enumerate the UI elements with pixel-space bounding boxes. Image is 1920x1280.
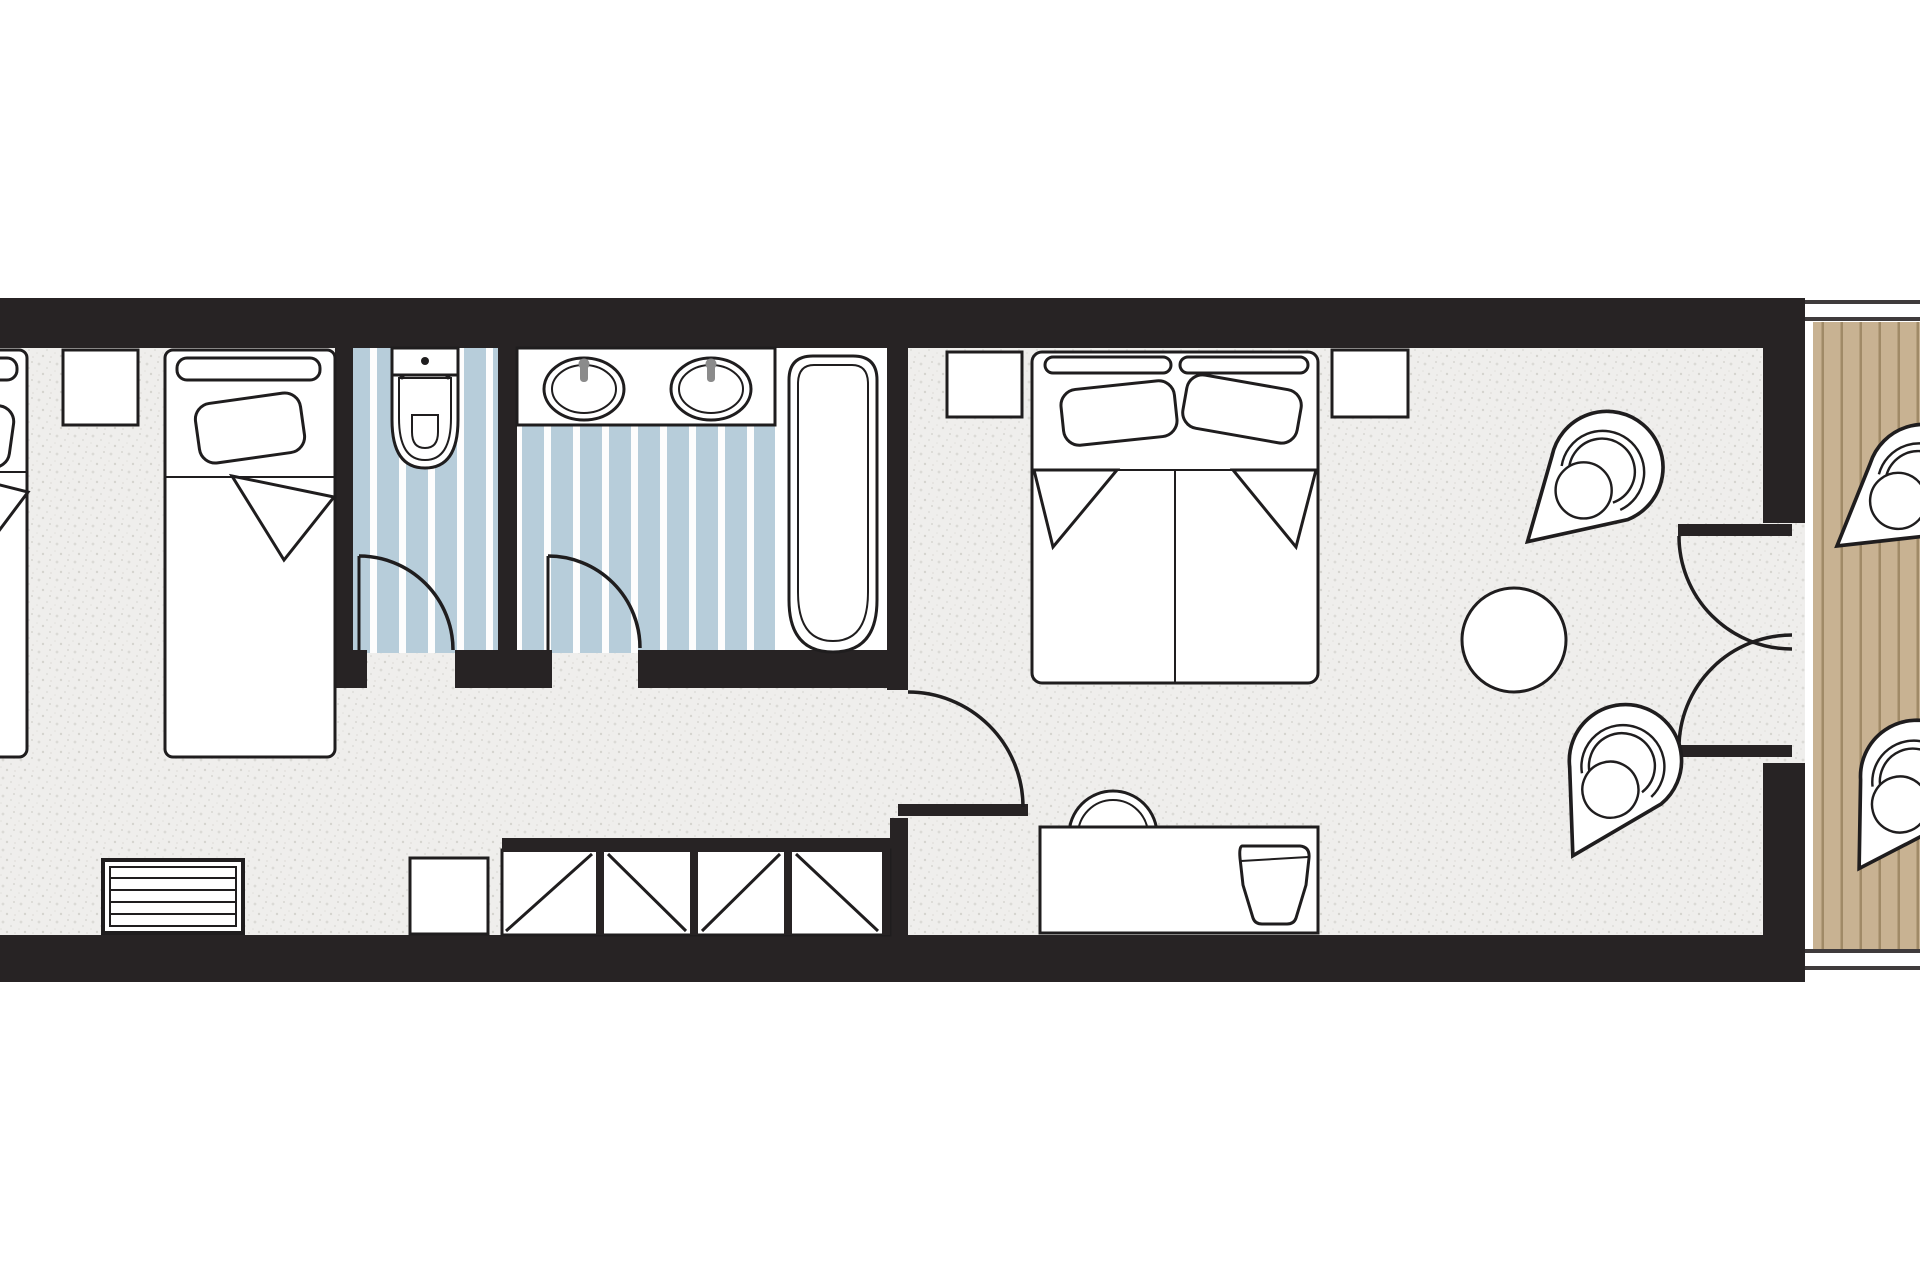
single-bed <box>165 350 335 757</box>
single-bed-clipped <box>0 350 28 757</box>
french-door-leaf-lower <box>1678 745 1792 757</box>
radiator <box>103 860 243 933</box>
double-bed <box>1032 352 1318 683</box>
sink-right <box>671 358 751 420</box>
entry-door-leaf <box>898 804 1028 816</box>
stool <box>410 858 488 934</box>
wall-bathroom-bottom <box>638 650 908 688</box>
wall-wc-bottom-left-stub <box>335 650 367 688</box>
wall-wc-left <box>335 348 353 658</box>
wall-wc-bath-bottom-stub <box>455 650 552 688</box>
wall-top <box>0 298 1805 348</box>
headboard-right <box>1180 357 1308 373</box>
headboard-left <box>1045 357 1171 373</box>
balcony <box>1805 300 1920 970</box>
wardrobe-closet <box>502 838 890 935</box>
balcony-bottom-rail <box>1805 966 1920 970</box>
wall-wc-bathroom <box>498 348 517 658</box>
french-door-leaf-upper <box>1678 524 1792 536</box>
floor-plan-canvas <box>0 0 1920 1280</box>
floor-plan <box>0 0 1920 1280</box>
wall-right-lower <box>1763 763 1805 982</box>
tv <box>1240 846 1309 924</box>
wall-entry-stub <box>890 818 908 935</box>
balcony-threshold <box>1805 322 1813 950</box>
bathtub <box>789 356 877 652</box>
wall-bottom <box>0 935 1805 982</box>
balcony-top-rail-inner <box>1805 317 1920 321</box>
round-table <box>1462 588 1566 692</box>
nightstand-left <box>947 352 1022 417</box>
sink-left <box>544 358 624 420</box>
toilet <box>392 348 458 468</box>
nightstand-right <box>1332 350 1408 417</box>
wall-bathroom-right <box>887 348 908 690</box>
balcony-top-rail <box>1805 300 1920 304</box>
wall-right-upper <box>1763 348 1805 523</box>
wc <box>392 348 458 468</box>
kids-nightstand <box>63 350 138 425</box>
balcony-bottom-rail-inner <box>1805 949 1920 953</box>
pillow-left <box>1059 379 1178 447</box>
bathroom-floor <box>517 425 775 653</box>
